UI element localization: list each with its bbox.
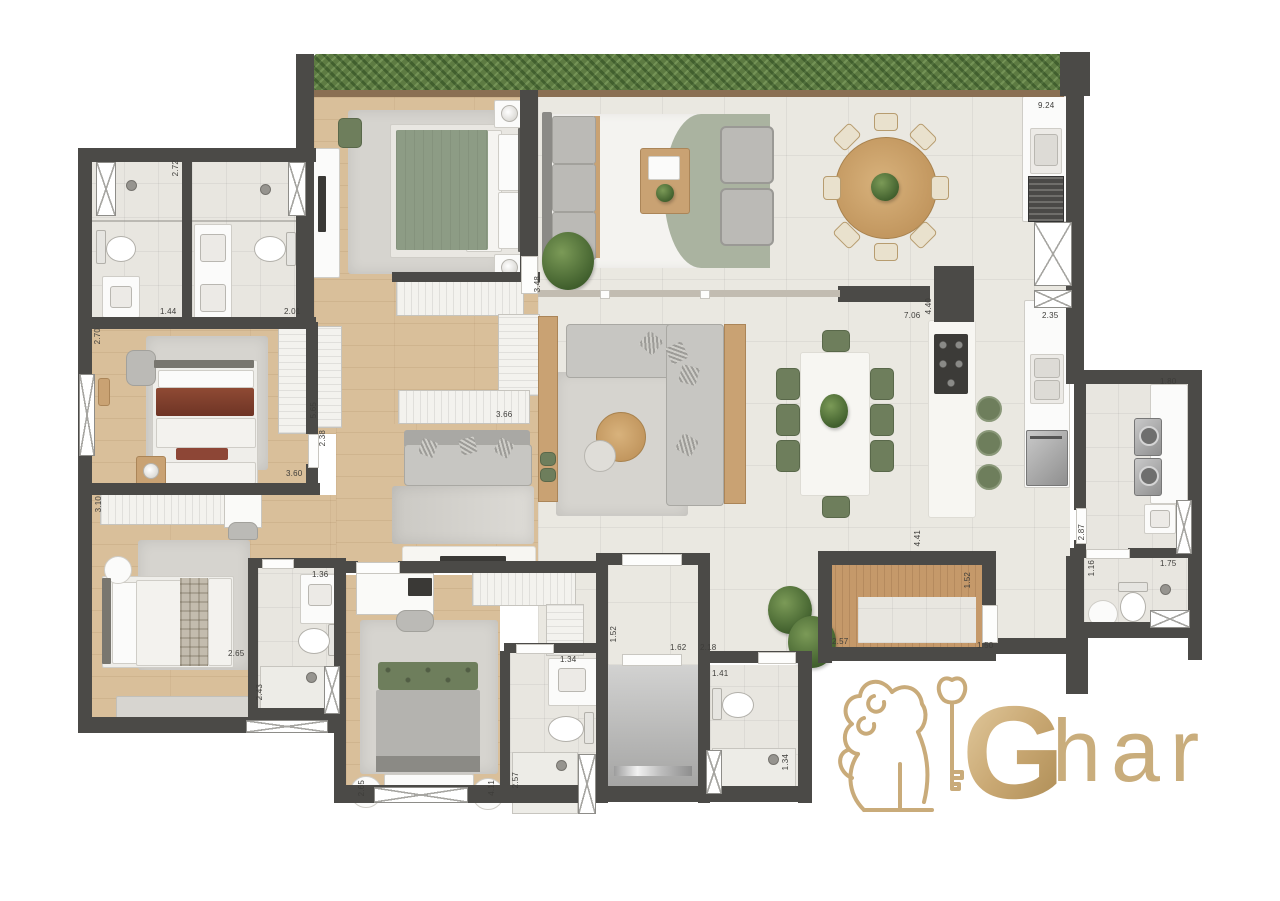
bedroom-4-wardrobe (472, 570, 576, 606)
dimension-label: 1.36 (312, 571, 328, 579)
bedroom-4-blanket-fold (376, 756, 480, 772)
floor-plan: 2.72 1.44 2.01 2.70 5.65 2.38 3.60 3.10 … (0, 0, 1280, 901)
closet-wardrobe-top (396, 280, 524, 316)
sink-basin (200, 284, 226, 312)
deck-nook-floor (858, 597, 976, 643)
lamp (143, 463, 159, 479)
dimension-label: 2.65 (358, 780, 366, 796)
cooktop (934, 334, 968, 394)
door-threshold (758, 652, 796, 664)
dining-chair-green (776, 440, 800, 472)
bedroom-4-duvet (376, 690, 480, 758)
bedroom-3-duvet (136, 580, 182, 666)
sink-basin (110, 286, 132, 308)
wall (596, 786, 812, 802)
shower-head-icon (306, 672, 317, 683)
toilet-bowl (254, 236, 286, 262)
shower-head-icon (126, 180, 137, 191)
dimension-label: 1.41 (712, 670, 728, 678)
shower-area (260, 666, 326, 714)
window-x (374, 787, 468, 803)
wall (78, 148, 316, 162)
dimension-label: 9.24 (1038, 102, 1054, 110)
den-rug (392, 486, 534, 544)
dimension-label: 3.66 (496, 411, 512, 419)
door-threshold (622, 554, 682, 566)
sliding-door-track (538, 290, 840, 297)
wall (818, 551, 996, 565)
door-post (700, 290, 710, 299)
brand-text: har (1052, 700, 1209, 802)
window-x (324, 666, 340, 714)
dimension-label: 2.65 (228, 650, 244, 658)
door-post (600, 290, 610, 299)
wall (982, 551, 996, 607)
bedroom-2-blanket (156, 388, 254, 416)
dimension-label: 2.70 (94, 328, 102, 344)
dimension-label: 1.34 (560, 656, 576, 664)
wall (78, 483, 320, 495)
master-pouf (338, 118, 362, 148)
window-x (1150, 610, 1190, 628)
sink-basin (200, 234, 226, 262)
shower-glass (92, 220, 182, 222)
dimension-label: 1.52 (610, 626, 618, 642)
dimension-label: 2.43 (256, 684, 264, 700)
planter-sill (314, 90, 1064, 97)
plant-centerpiece (820, 394, 848, 428)
sink-basin (558, 668, 586, 692)
dining-chair (823, 176, 841, 200)
dining-chair-green (776, 368, 800, 400)
dimension-label: 2.57 (512, 772, 520, 788)
dining-chair-green (870, 368, 894, 400)
outdoor-armchair (720, 188, 774, 246)
master-tv-cabinet (312, 148, 340, 278)
window-x (1176, 500, 1192, 554)
window-x (706, 750, 722, 794)
closet-wardrobe-right (498, 314, 540, 396)
oven-handle (1030, 436, 1062, 439)
dimension-label: 4.41 (914, 530, 922, 546)
dining-chair (931, 176, 949, 200)
bedroom-2-bed-end (156, 462, 256, 484)
bar-stool (976, 396, 1002, 422)
wall (182, 162, 192, 320)
window-x (288, 162, 306, 216)
wall (838, 286, 930, 302)
dining-chair-green (870, 404, 894, 436)
service-shaft-x (1034, 222, 1072, 286)
tv (318, 176, 326, 232)
desk-chair (228, 522, 258, 540)
outdoor-armchair (720, 126, 774, 184)
dining-chair (874, 113, 898, 131)
bedroom-2-headboard (154, 360, 254, 368)
wall (1066, 556, 1084, 628)
dimension-label: 1.75 (1160, 560, 1176, 568)
wall (1074, 384, 1086, 510)
hedge-planter (314, 54, 1064, 92)
door-threshold (262, 559, 294, 569)
bedroom-3-pillows (112, 582, 138, 664)
lamp (501, 105, 518, 122)
door-threshold (516, 644, 554, 654)
bedroom-2-cushion (176, 448, 228, 460)
master-duvet (396, 130, 488, 250)
dimension-label: 1.80 (1160, 378, 1176, 386)
washer-door (1139, 426, 1159, 446)
wall (1066, 370, 1202, 384)
sink-basin (308, 584, 332, 606)
sink-basin (1034, 134, 1058, 166)
shower-head-icon (1160, 584, 1171, 595)
elevator-door-threshold (622, 654, 682, 666)
bedroom-3-plaid-blanket (180, 578, 208, 666)
shower-head-icon (260, 184, 271, 195)
window-x (578, 754, 596, 814)
wall (398, 561, 602, 573)
dining-chair-green (822, 496, 850, 518)
grill (1028, 176, 1064, 222)
toilet (286, 232, 296, 266)
elevator-doors (614, 766, 692, 776)
dining-chair-green (870, 440, 894, 472)
dimension-label: 2.87 (1078, 524, 1086, 540)
side-coffee-table (584, 440, 616, 472)
plant (542, 232, 594, 290)
bedroom-3-headboard (102, 578, 111, 664)
wall-art (98, 378, 110, 406)
shower-area (512, 752, 578, 814)
decor-tray (540, 452, 556, 466)
wall (520, 90, 538, 274)
bar-stool (976, 464, 1002, 490)
dimension-label: 5.65 (310, 402, 318, 418)
toilet-bowl (722, 692, 754, 718)
wall (78, 317, 316, 329)
dimension-label: 2.57 (832, 638, 848, 646)
dimension-label: 2.18 (700, 644, 716, 652)
toilet-bowl (1120, 592, 1146, 622)
toilet (1118, 582, 1148, 592)
service-shaft-x (1034, 290, 1072, 308)
toilet-bowl (298, 628, 330, 654)
dimension-label: 7.06 (904, 312, 920, 320)
door-threshold (982, 605, 998, 643)
decor-tray (540, 468, 556, 482)
dimension-label: 1.44 (160, 308, 176, 316)
dining-chair-green (776, 404, 800, 436)
window-x (246, 720, 328, 733)
bedroom-2-duvet (156, 418, 256, 448)
dimension-label: 2.72 (172, 160, 180, 176)
bedroom-4-headboard (378, 662, 478, 690)
dimension-label: 1.52 (964, 572, 972, 588)
shower-head-icon (556, 760, 567, 771)
dimension-label: 1.34 (782, 754, 790, 770)
dimension-label: 1.50 (977, 642, 993, 650)
dimension-label: 1.62 (670, 644, 686, 652)
dimension-label: 4.11 (488, 780, 496, 796)
outdoor-sofa-cushion (552, 164, 596, 212)
wall (994, 638, 1070, 654)
sink-basin (1150, 510, 1170, 528)
bedroom-2-armchair (126, 350, 156, 386)
shower-head-icon (768, 754, 779, 765)
window-x (96, 162, 116, 216)
door-threshold (1086, 549, 1130, 559)
console-behind-sofa (724, 324, 746, 504)
dimension-label: 2.38 (319, 430, 327, 446)
dimension-label: 2.01 (284, 308, 300, 316)
toilet (584, 712, 594, 744)
desk-chair (396, 610, 434, 632)
dimension-label: 1.16 (1088, 560, 1096, 576)
wall (392, 272, 540, 282)
window-x (79, 374, 95, 456)
wall (818, 647, 996, 661)
toilet-bowl (106, 236, 136, 262)
dimension-label: 4.40 (925, 298, 933, 314)
dimension-label: 2.35 (1042, 312, 1058, 320)
dining-chair-green (822, 330, 850, 352)
washer-door (1139, 466, 1159, 486)
wall (596, 553, 608, 803)
shower-glass (192, 220, 302, 222)
outdoor-sofa-cushion (552, 116, 596, 164)
sink-basin (1034, 380, 1060, 400)
door-threshold (356, 562, 400, 574)
dimension-label: 3.60 (286, 470, 302, 478)
toilet-bowl (548, 716, 584, 742)
toilet (712, 688, 722, 720)
plant (656, 184, 674, 202)
bar-stool (976, 430, 1002, 456)
bedroom-2-pillows (158, 370, 254, 388)
wall (798, 651, 812, 803)
wall (934, 266, 974, 322)
toilet (96, 230, 106, 264)
dining-chair (874, 243, 898, 261)
laptop (408, 578, 432, 596)
brand-initial: G (962, 679, 1065, 826)
sink-basin (1034, 358, 1060, 378)
dimension-label: 3.10 (95, 496, 103, 512)
tray (648, 156, 680, 180)
plant-centerpiece (871, 173, 899, 201)
dimension-label: 3.48 (534, 276, 542, 292)
wall (500, 651, 510, 791)
wall (336, 561, 358, 573)
